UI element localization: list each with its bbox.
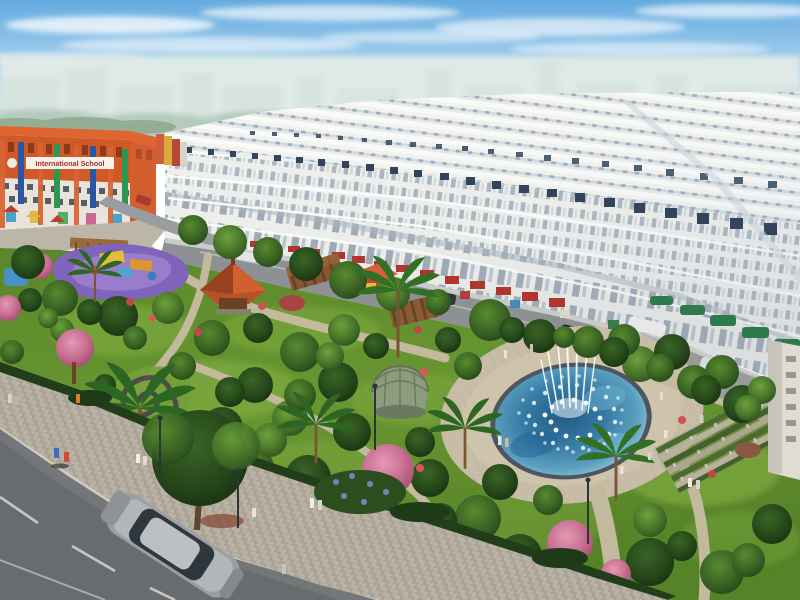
svg-text:International School: International School <box>35 159 104 168</box>
